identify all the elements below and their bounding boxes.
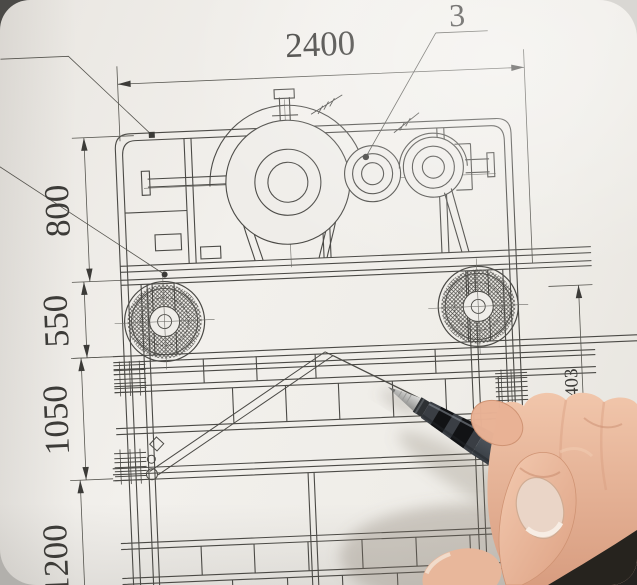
photo-frame: 2400 800 550 1050 1200 1403 2 3: [0, 0, 637, 585]
drawing-paper: 2400 800 550 1050 1200 1403 2 3: [0, 0, 637, 585]
hand-pen-svg: [0, 0, 637, 585]
